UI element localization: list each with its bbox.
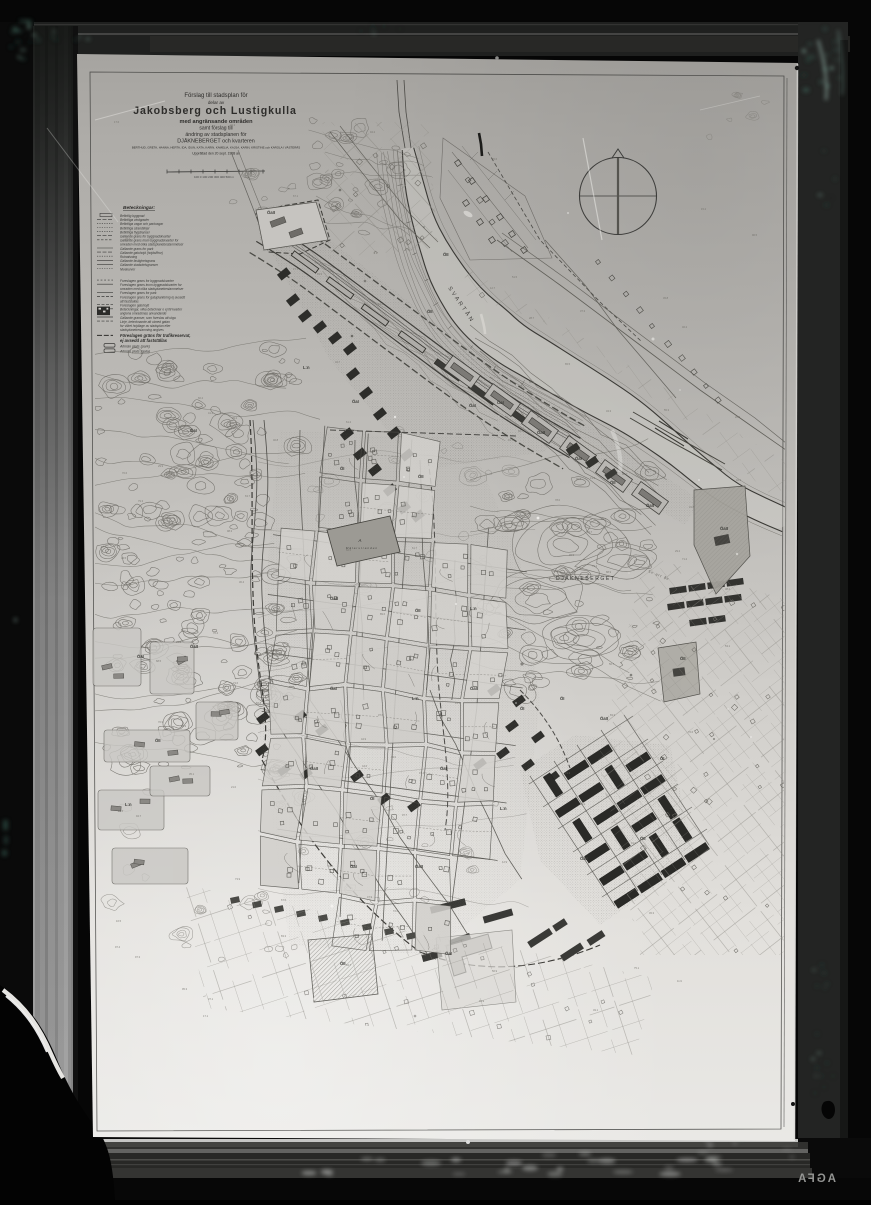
svg-text:ÖaI: ÖaI: [137, 654, 144, 659]
svg-text:44.6: 44.6: [362, 764, 368, 768]
svg-text:47.9: 47.9: [367, 895, 373, 899]
svg-text:42.2: 42.2: [736, 478, 742, 482]
svg-text:100 0 100 200 300 40: 100 0 100 200 300 400 500 m: [194, 175, 235, 179]
svg-text:66.0: 66.0: [518, 429, 524, 433]
svg-text:93.3: 93.3: [317, 272, 323, 276]
svg-text:84.7: 84.7: [346, 963, 352, 967]
svg-text:90.8: 90.8: [576, 477, 582, 481]
svg-text:A: A: [357, 538, 361, 543]
svg-text:ÖaI: ÖaI: [497, 400, 504, 405]
svg-text:29.9: 29.9: [158, 464, 164, 468]
svg-text:55.3: 55.3: [664, 408, 670, 412]
svg-text:ÖaI: ÖaI: [350, 864, 357, 869]
svg-text:17.6: 17.6: [114, 120, 120, 124]
svg-text:12.9: 12.9: [502, 860, 508, 864]
svg-text:60.2: 60.2: [198, 396, 204, 400]
svg-text:ÖII: ÖII: [640, 836, 646, 841]
svg-text:ÖaI: ÖaI: [469, 403, 476, 408]
svg-text:12.7: 12.7: [490, 286, 496, 290]
svg-text:21.0: 21.0: [231, 785, 237, 789]
svg-text:14.2: 14.2: [539, 427, 545, 431]
svg-text:70.6: 70.6: [122, 471, 128, 475]
svg-text:62.5: 62.5: [346, 548, 352, 552]
svg-text:ÖaII: ÖaII: [720, 526, 728, 531]
svg-text:30.4: 30.4: [239, 580, 245, 584]
svg-text:24.2: 24.2: [558, 957, 564, 961]
svg-text:96.9: 96.9: [569, 553, 575, 557]
svg-text:78.0: 78.0: [555, 498, 561, 502]
svg-text:45.3: 45.3: [649, 911, 655, 915]
svg-text:39.2: 39.2: [232, 416, 238, 420]
svg-text:Jakobsberg och Lustigkulla: Jakobsberg och Lustigkulla: [133, 105, 297, 117]
svg-text:19.0: 19.0: [631, 841, 637, 845]
svg-text:DJÄKNEBERGET och kvarteren: DJÄKNEBERGET och kvarteren: [177, 138, 255, 145]
svg-text:32.3: 32.3: [230, 123, 236, 127]
svg-text:ÖaII: ÖaII: [415, 864, 423, 869]
svg-text:41.2: 41.2: [208, 411, 214, 415]
svg-text:98.3: 98.3: [227, 529, 233, 533]
svg-text:19.3: 19.3: [565, 771, 571, 775]
svg-text:ÖII: ÖII: [427, 309, 433, 314]
svg-text:BERTHUD, GRETA, HANNA, HERTA,: BERTHUD, GRETA, HANNA, HERTA, IDA, IDUN,…: [132, 145, 300, 150]
svg-text:L:n: L:n: [500, 806, 507, 811]
svg-text:56.9: 56.9: [492, 969, 498, 973]
svg-text:55.6: 55.6: [492, 157, 498, 161]
svg-text:94.2: 94.2: [370, 130, 376, 134]
svg-text:35.1: 35.1: [189, 772, 195, 776]
svg-text:49.1: 49.1: [593, 1008, 599, 1012]
svg-text:97.4: 97.4: [115, 945, 121, 949]
svg-text:76.6: 76.6: [688, 730, 694, 734]
svg-text:ÖaI: ÖaI: [352, 399, 359, 404]
svg-text:L:n: L:n: [470, 606, 477, 611]
svg-text:AGFA: AGFA: [796, 1173, 836, 1185]
svg-text:ÖaII: ÖaII: [580, 856, 588, 861]
svg-text:79.3: 79.3: [138, 499, 144, 503]
svg-text:stadsplanebestamning angives: stadsplanebestamning angives: [120, 328, 164, 332]
svg-text:45.8: 45.8: [663, 296, 669, 300]
svg-text:83.3: 83.3: [281, 934, 287, 938]
svg-text:Nivakurvor: Nivakurvor: [120, 267, 136, 271]
svg-text:ÖI: ÖI: [560, 696, 564, 701]
svg-text:29.2: 29.2: [675, 549, 681, 553]
svg-text:70.9: 70.9: [158, 720, 164, 724]
svg-text:16.5: 16.5: [116, 919, 122, 923]
svg-text:65.5: 65.5: [565, 362, 571, 366]
svg-text:73.4: 73.4: [592, 564, 598, 568]
svg-text:Upprättad den 20 sept. 1938 av: Upprättad den 20 sept. 1938 av: [192, 152, 240, 156]
svg-text:28.7: 28.7: [529, 316, 535, 320]
svg-text:95.3: 95.3: [182, 987, 188, 991]
svg-text:67.1: 67.1: [293, 194, 299, 198]
svg-text:ÖaII: ÖaII: [190, 644, 198, 649]
svg-text:20.5: 20.5: [735, 415, 741, 419]
svg-text:ÖII: ÖII: [418, 474, 424, 479]
svg-text:59.7: 59.7: [587, 530, 593, 534]
svg-text:samt förslag till: samt förslag till: [199, 126, 232, 132]
svg-text:ÖII: ÖII: [415, 608, 421, 613]
svg-text:46.2: 46.2: [682, 325, 688, 329]
svg-text:68.5: 68.5: [156, 659, 162, 663]
svg-text:37.6: 37.6: [378, 713, 384, 717]
svg-text:40.8: 40.8: [273, 438, 279, 442]
svg-text:31.5: 31.5: [689, 505, 695, 509]
svg-text:53.9: 53.9: [580, 802, 586, 806]
svg-text:53.1: 53.1: [725, 644, 731, 648]
svg-text:ÖaII: ÖaII: [470, 686, 478, 691]
svg-text:97.3: 97.3: [135, 955, 141, 959]
svg-text:23.3: 23.3: [125, 237, 131, 241]
svg-text:88.6: 88.6: [529, 380, 535, 384]
svg-text:Förslag till stadsplan för: Förslag till stadsplan för: [184, 93, 247, 99]
svg-text:ÖaII: ÖaII: [330, 596, 338, 601]
svg-text:82.8: 82.8: [256, 701, 262, 705]
svg-text:34.3: 34.3: [606, 409, 612, 413]
svg-text:med angränsande områden: med angränsande områden: [179, 118, 253, 125]
svg-text:53.8: 53.8: [378, 302, 384, 306]
svg-text:ändring av stadsplanen för: ändring av stadsplanen för: [185, 132, 246, 138]
svg-text:ÖaI: ÖaI: [440, 766, 447, 771]
svg-text:L:n: L:n: [303, 365, 310, 370]
svg-text:14.1: 14.1: [455, 701, 461, 705]
svg-text:ÖI: ÖI: [370, 796, 374, 801]
svg-text:17.1: 17.1: [293, 267, 299, 271]
svg-text:94.9: 94.9: [479, 999, 485, 1003]
svg-text:48.9: 48.9: [181, 724, 187, 728]
svg-text:44.9: 44.9: [361, 737, 367, 741]
svg-text:83.3: 83.3: [610, 713, 616, 717]
svg-text:34.7: 34.7: [335, 360, 341, 364]
svg-text:97.7: 97.7: [402, 813, 408, 817]
svg-text:ÖaI: ÖaI: [190, 428, 197, 433]
svg-text:37.3: 37.3: [580, 309, 586, 313]
svg-text:29.2: 29.2: [176, 640, 182, 644]
svg-text:ÖI: ÖI: [520, 706, 524, 711]
svg-text:Beteckningar:: Beteckningar:: [123, 205, 155, 211]
svg-text:ÖII: ÖII: [340, 961, 346, 966]
svg-text:13.2: 13.2: [590, 476, 596, 480]
svg-text:51.5: 51.5: [512, 275, 518, 279]
svg-text:67.5: 67.5: [281, 898, 287, 902]
svg-text:37.1: 37.1: [208, 997, 214, 1001]
svg-text:17.1: 17.1: [203, 1014, 209, 1018]
svg-text:63.7: 63.7: [245, 494, 251, 498]
svg-text:ÖII: ÖII: [155, 738, 161, 743]
svg-text:DJÄKNEBERGET: DJÄKNEBERGET: [556, 575, 616, 582]
svg-text:68.8: 68.8: [421, 953, 427, 957]
svg-text:75.1: 75.1: [634, 966, 640, 970]
svg-text:72.0: 72.0: [393, 909, 399, 913]
svg-text:90.5: 90.5: [752, 233, 758, 237]
svg-text:ej avsedd att fastställas: ej avsedd att fastställas: [120, 338, 168, 343]
svg-text:61.7: 61.7: [412, 546, 418, 550]
svg-text:61.2: 61.2: [346, 420, 352, 424]
svg-text:11.9: 11.9: [677, 979, 682, 983]
svg-text:94.7: 94.7: [136, 814, 142, 818]
svg-text:ÖII: ÖII: [680, 656, 686, 661]
svg-text:70.4: 70.4: [213, 631, 219, 635]
svg-text:91.7: 91.7: [508, 438, 514, 442]
svg-text:64.6: 64.6: [328, 864, 334, 868]
svg-text:ÖII: ÖII: [610, 480, 616, 485]
svg-text:88.9: 88.9: [606, 570, 612, 574]
svg-text:ÖI: ÖI: [660, 756, 664, 761]
svg-text:81.2: 81.2: [270, 609, 276, 613]
svg-text:ÖI: ÖI: [340, 466, 344, 471]
svg-text:36.0: 36.0: [391, 755, 397, 759]
svg-text:L:n: L:n: [125, 802, 132, 807]
svg-text:L:n: L:n: [412, 696, 419, 701]
svg-text:90.2: 90.2: [622, 472, 628, 476]
svg-text:ÖaI: ÖaI: [575, 456, 582, 461]
svg-text:21.5: 21.5: [118, 809, 124, 813]
svg-text:44.5: 44.5: [121, 556, 127, 560]
svg-text:15.2: 15.2: [701, 207, 707, 211]
svg-text:ÖaI: ÖaI: [445, 951, 452, 956]
svg-text:96.7: 96.7: [601, 517, 607, 521]
svg-text:47.4: 47.4: [419, 771, 425, 775]
svg-text:17.9: 17.9: [431, 957, 437, 961]
svg-text:ÖaII: ÖaII: [310, 766, 318, 771]
svg-text:48.2: 48.2: [349, 136, 355, 140]
svg-text:38.2: 38.2: [725, 587, 731, 591]
svg-text:ÖaII: ÖaII: [600, 716, 608, 721]
svg-text:ÖaII: ÖaII: [267, 210, 275, 215]
svg-text:89.6: 89.6: [380, 612, 386, 616]
svg-text:ÖaI: ÖaI: [330, 686, 337, 691]
svg-text:71.2: 71.2: [682, 557, 688, 561]
svg-text:73.6: 73.6: [233, 681, 239, 685]
svg-text:73.9: 73.9: [235, 877, 241, 881]
svg-text:ÖaII: ÖaII: [646, 503, 654, 508]
svg-text:56.7: 56.7: [609, 662, 615, 666]
svg-text:ÖII: ÖII: [443, 252, 449, 257]
